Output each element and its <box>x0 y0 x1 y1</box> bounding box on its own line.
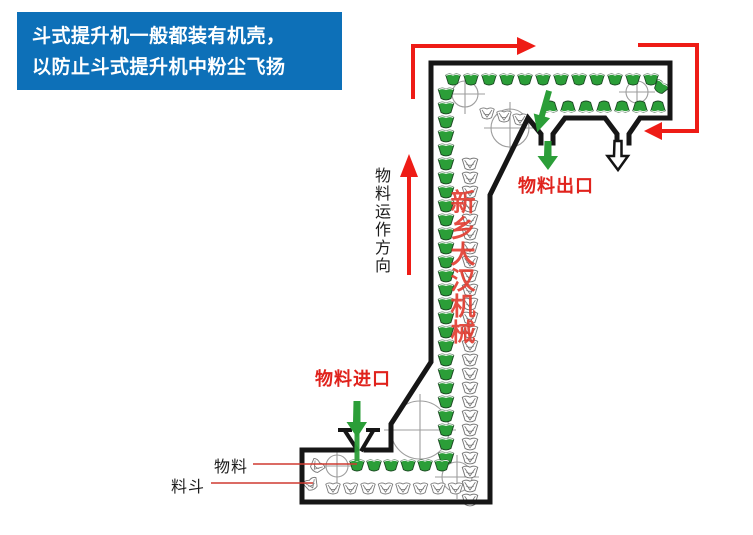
bucket-full <box>536 74 550 85</box>
bucket-full <box>438 382 453 394</box>
bucket-empty <box>462 396 477 408</box>
bucket-full <box>597 101 611 112</box>
bucket-label: 料斗 <box>171 473 205 497</box>
bucket-full <box>438 158 453 170</box>
bucket-full <box>438 298 453 310</box>
bucket-empty <box>308 458 326 476</box>
bucket-full <box>561 101 575 112</box>
bucket-empty <box>462 172 477 184</box>
bucket-full <box>500 74 514 85</box>
bucket-full <box>482 74 496 85</box>
bucket-full <box>626 74 640 85</box>
material-inlet-label: 物料进口 <box>315 365 391 391</box>
bucket-empty <box>462 410 477 422</box>
bucket-empty <box>413 483 427 494</box>
bucket-empty <box>462 312 477 324</box>
bucket-full <box>590 74 604 85</box>
bucket-empty <box>302 476 320 492</box>
flow-direction-arrow <box>400 154 418 275</box>
bucket-full <box>518 74 532 85</box>
bucket-empty <box>497 111 511 122</box>
flow-direction-label: 物料运作方向 <box>372 167 388 279</box>
bucket-full <box>350 460 364 471</box>
bucket-empty <box>462 438 477 450</box>
bucket-empty <box>462 480 477 492</box>
bucket-full <box>438 242 453 254</box>
bucket-empty <box>462 298 477 310</box>
bucket-empty <box>462 214 477 226</box>
bucket-empty <box>462 256 477 268</box>
bucket-full <box>438 214 453 226</box>
info-box: 斗式提升机一般都装有机壳， 以防止斗式提升机中粉尘飞扬 <box>17 12 342 90</box>
bucket-full <box>438 284 453 296</box>
bucket-empty <box>326 483 340 494</box>
bucket-full <box>438 326 453 338</box>
bucket-full <box>438 396 453 408</box>
bucket-full <box>579 101 593 112</box>
bucket-full <box>438 172 453 184</box>
bucket-empty <box>480 108 494 119</box>
bucket-empty <box>462 368 477 380</box>
casing-outline-left <box>302 118 541 502</box>
inlet-arrow-icon <box>347 401 368 438</box>
bucket-full <box>438 354 453 366</box>
info-box-line1: 斗式提升机一般都装有机壳， <box>32 21 342 52</box>
bucket-empty <box>462 228 477 240</box>
up-arrowhead-icon <box>400 154 418 177</box>
bucket-full <box>438 312 453 324</box>
bucket-full <box>438 88 453 100</box>
bucket-full <box>384 460 398 471</box>
bucket-full <box>438 186 453 198</box>
bucket-full <box>554 74 568 85</box>
bucket-full <box>446 74 460 85</box>
bucket-empty <box>462 354 477 366</box>
bucket-empty <box>396 483 410 494</box>
bucket-full <box>438 144 453 156</box>
bucket-full <box>633 101 647 112</box>
bucket-full <box>438 410 453 422</box>
bucket-empty <box>462 200 477 212</box>
bucket-full <box>438 256 453 268</box>
bucket-empty <box>462 382 477 394</box>
bucket-empty <box>462 158 477 170</box>
bucket-full <box>435 460 449 471</box>
bucket-full <box>418 460 432 471</box>
bucket-full <box>651 101 665 112</box>
bucket-empty <box>462 340 477 352</box>
bucket-empty <box>462 284 477 296</box>
material-label: 物料 <box>214 453 248 477</box>
info-box-line2: 以防止斗式提升机中粉尘飞扬 <box>32 52 342 83</box>
bucket-empty <box>343 483 357 494</box>
bucket-empty <box>462 270 477 282</box>
bucket-empty <box>462 186 477 198</box>
bucket-full <box>438 116 453 128</box>
casing-outline-funnels <box>553 118 617 143</box>
bucket-full <box>438 200 453 212</box>
bucket-empty <box>462 466 477 478</box>
bucket-empty <box>431 483 445 494</box>
bucket-full <box>438 368 453 380</box>
bucket-full <box>438 424 453 436</box>
flow-arrowhead-right-icon <box>517 37 536 55</box>
bucket-empty <box>361 483 375 494</box>
bucket-full <box>572 74 586 85</box>
bucket-full <box>608 74 622 85</box>
bucket-full <box>367 460 381 471</box>
bucket-full <box>438 438 453 450</box>
bucket-full <box>438 228 453 240</box>
bucket-full <box>438 340 453 352</box>
bucket-full <box>438 102 453 114</box>
bucket-empty <box>462 326 477 338</box>
material-outlet-label: 物料出口 <box>518 172 594 198</box>
flow-arrowhead-left-icon <box>644 122 662 140</box>
bucket-full <box>401 460 415 471</box>
bucket-full <box>615 101 629 112</box>
bucket-elevator-figure: 斗式提升机一般都装有机壳， 以防止斗式提升机中粉尘飞扬 物料运作方向 新乡大汉机… <box>0 0 753 535</box>
bucket-empty <box>462 452 477 464</box>
bucket-empty <box>378 483 392 494</box>
bucket-empty <box>462 242 477 254</box>
bucket-full <box>464 74 478 85</box>
bucket-full <box>438 270 453 282</box>
bucket-empty <box>448 483 462 494</box>
bucket-full <box>438 130 453 142</box>
outlet-arrow-return-icon <box>608 141 629 170</box>
bucket-empty <box>462 424 477 436</box>
